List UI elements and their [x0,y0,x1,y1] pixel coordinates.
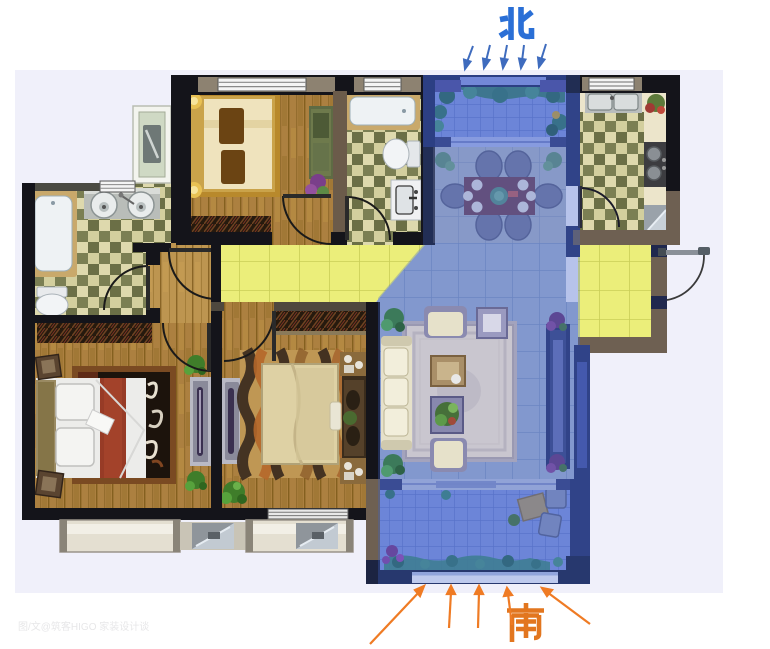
svg-text:图/文@筑客HIGO 家装设计谈: 图/文@筑客HIGO 家装设计谈 [18,620,149,633]
